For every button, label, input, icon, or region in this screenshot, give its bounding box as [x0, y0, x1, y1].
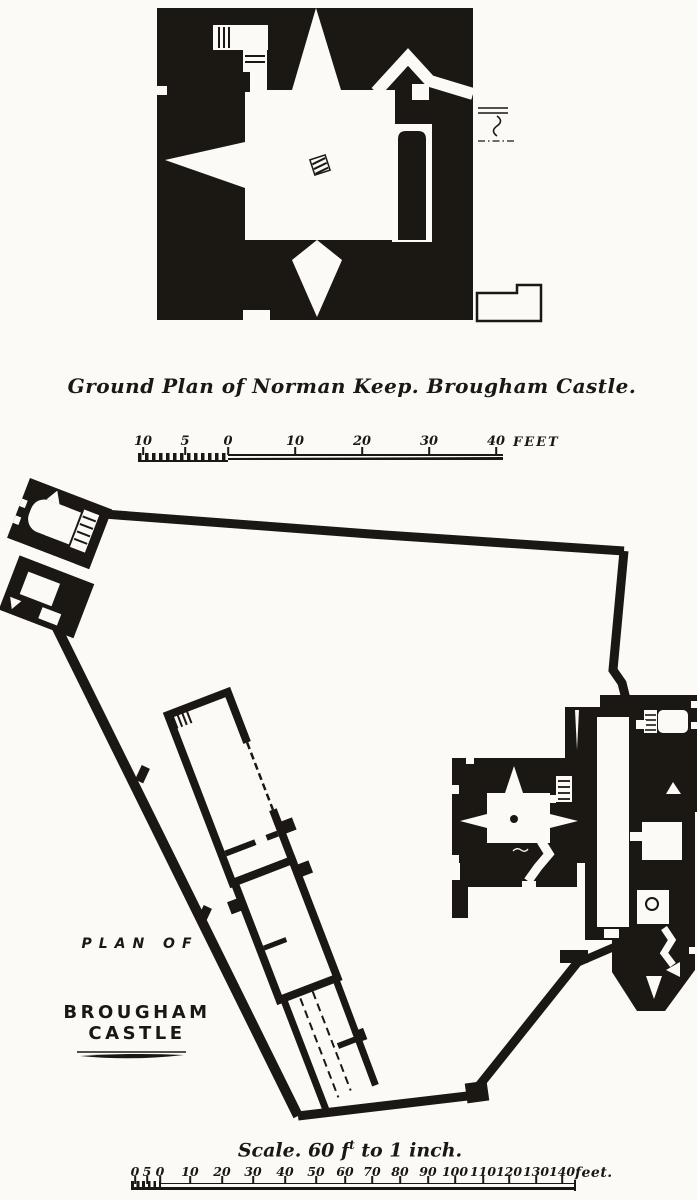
east-room	[642, 822, 682, 860]
scale-tick	[495, 447, 497, 455]
scale-tick	[221, 1176, 223, 1184]
keep-plan-caption: Ground Plan of Norman Keep. Brougham Cas…	[46, 374, 658, 398]
inner-keep-stair	[556, 776, 572, 802]
inner-keep-well	[510, 815, 518, 823]
scale-unit-label: FEET	[513, 435, 560, 450]
scale-tick	[252, 1176, 254, 1184]
southeast-tower	[612, 940, 695, 1011]
keep-stair-passage	[250, 72, 267, 92]
castle-plan-title-line1: PLAN OF	[60, 936, 220, 952]
east-curtain-wall	[613, 551, 627, 703]
scale-tick	[428, 447, 430, 455]
oven-circle	[646, 898, 658, 910]
inner-keep	[452, 707, 593, 918]
scale-unit-label: feet.	[575, 1165, 613, 1181]
scale-tick	[227, 447, 229, 455]
keep-plan-drawing	[157, 8, 541, 321]
scale-tick	[482, 1176, 484, 1184]
keep-stair-chamber	[213, 25, 268, 50]
southeast-curtain-wall	[470, 963, 577, 1097]
castle-plan-figure	[0, 470, 697, 1160]
scale-tick	[561, 1176, 563, 1184]
scale-tick	[315, 1176, 317, 1184]
inner-keep-room	[487, 793, 550, 843]
castle-plan-title-line2: BROUGHAM CASTLE	[27, 1002, 247, 1044]
scale-end-cap	[574, 1180, 576, 1191]
scale-tick	[535, 1176, 537, 1184]
scale-caption-prefix: Scale. 60 f	[238, 1139, 349, 1161]
range-dashed-line	[300, 998, 338, 1097]
scale-tick	[142, 447, 144, 455]
keep-scale-bar: FEET 105010203040	[135, 434, 575, 468]
scale-tick	[427, 1176, 429, 1184]
scale-tick	[361, 447, 363, 455]
tower-stair-passage	[664, 928, 673, 965]
scale-tick	[184, 447, 186, 455]
scale-tick	[399, 1176, 401, 1184]
scale-caption-suffix: to 1 inch.	[355, 1139, 463, 1161]
northeast-tower-room	[658, 710, 688, 733]
title-underline-flourish	[77, 1052, 186, 1058]
keep-east-door-marks	[478, 108, 514, 141]
scale-tick	[146, 1176, 148, 1184]
scale-tick	[189, 1176, 191, 1184]
north-curtain-wall	[104, 514, 624, 551]
keep-annexe-outline	[477, 285, 541, 321]
keep-plan-figure	[140, 2, 580, 337]
gatehouse-complex	[0, 478, 121, 638]
scale-tick	[344, 1176, 346, 1184]
scale-bar	[131, 1187, 575, 1190]
scale-tick	[294, 447, 296, 455]
scale-hatch-section	[138, 453, 228, 462]
scale-tick	[454, 1176, 456, 1184]
castle-scale-caption: Scale. 60 ft to 1 inch.	[100, 1138, 600, 1161]
scale-tick	[134, 1176, 136, 1184]
scale-tick	[159, 1176, 161, 1184]
castle-scale-bar: feet. 0501020304050607080901001101201301…	[125, 1164, 625, 1198]
keep-pier	[398, 131, 426, 240]
engraving-page: Ground Plan of Norman Keep. Brougham Cas…	[0, 0, 697, 1200]
scale-tick	[371, 1176, 373, 1184]
scale-tick	[284, 1176, 286, 1184]
hall-interior	[597, 717, 629, 927]
range-chambers	[234, 860, 337, 1000]
scale-tick	[508, 1176, 510, 1184]
